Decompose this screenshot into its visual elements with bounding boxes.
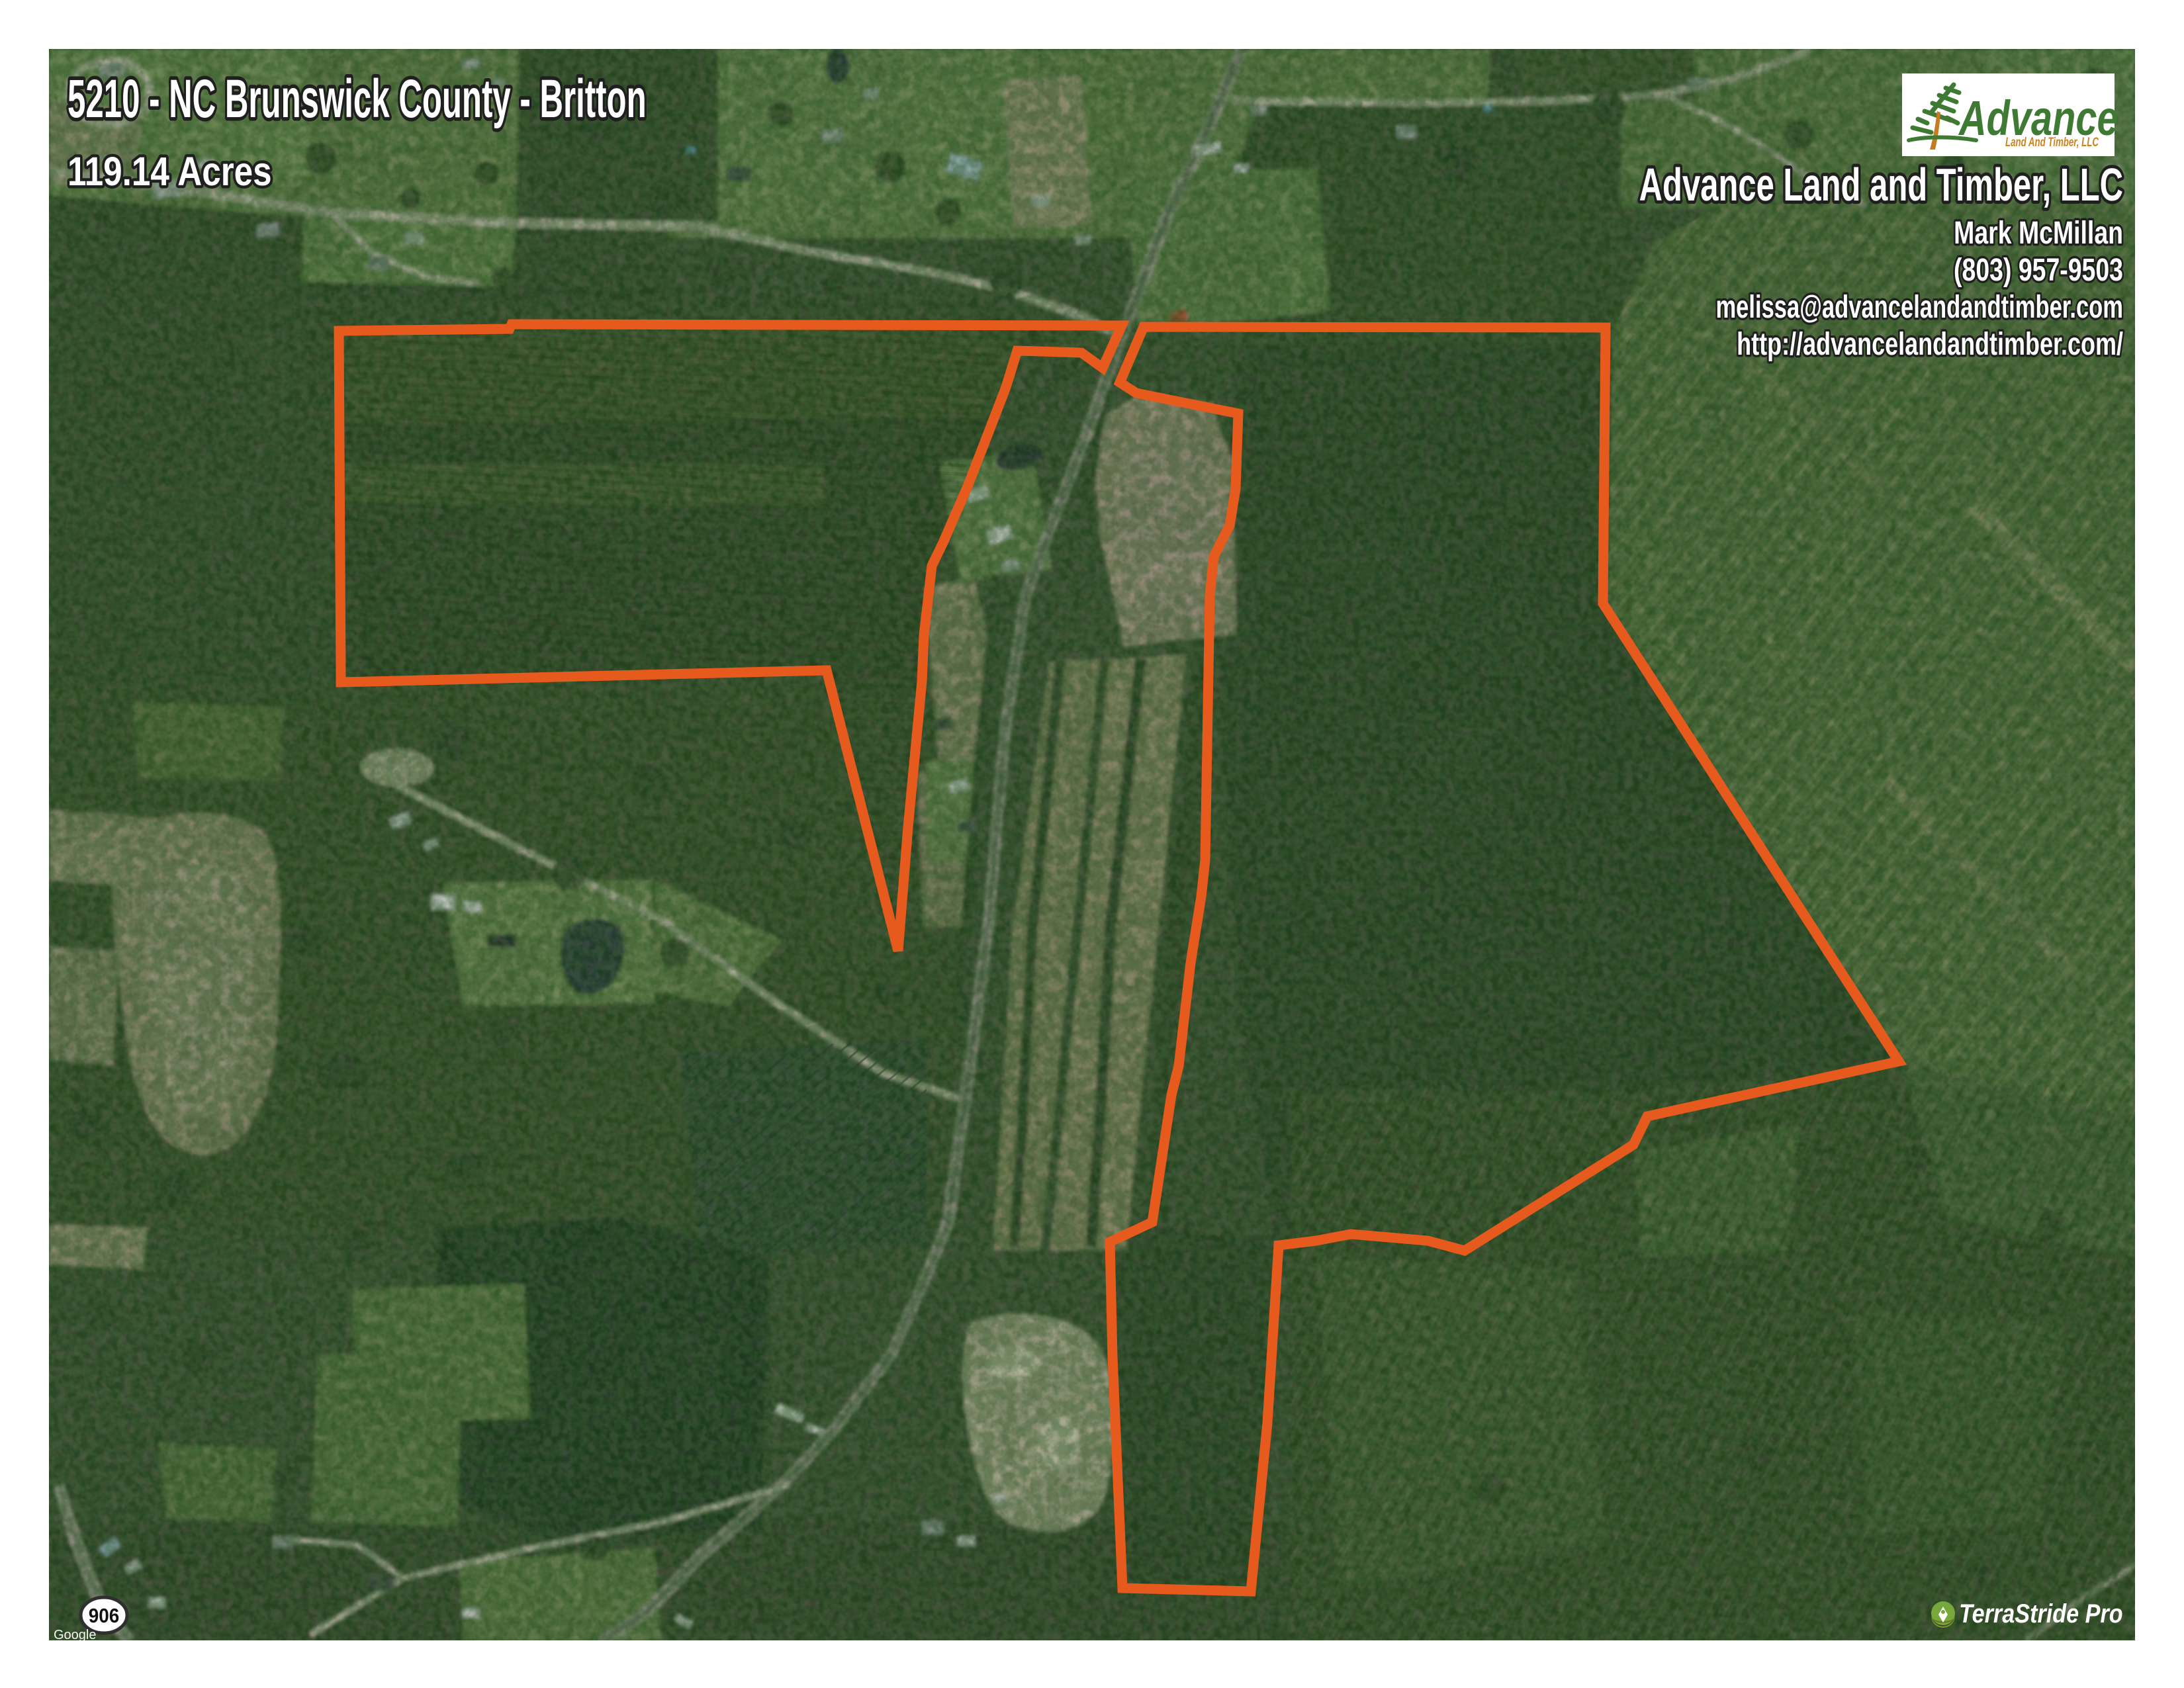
- svg-text:Advance Land and Timber, LLC: Advance Land and Timber, LLC: [1639, 158, 2123, 210]
- svg-text:Mark McMillan: Mark McMillan: [1954, 216, 2123, 251]
- svg-text:906: 906: [89, 1605, 120, 1628]
- svg-text:119.14 Acres: 119.14 Acres: [68, 149, 272, 194]
- svg-text:5210 - NC Brunswick County - B: 5210 - NC Brunswick County - Britton: [68, 69, 647, 129]
- svg-text:melissa@advancelandandtimber.c: melissa@advancelandandtimber.com: [1715, 289, 2123, 324]
- svg-text:Google: Google: [54, 1628, 97, 1642]
- svg-text:TerraStride Pro: TerraStride Pro: [1959, 1598, 2123, 1628]
- svg-text:(803) 957-9503: (803) 957-9503: [1954, 253, 2123, 289]
- svg-text:http://advancelandandtimber.co: http://advancelandandtimber.com/: [1737, 326, 2123, 361]
- svg-text:Land And Timber, LLC: Land And Timber, LLC: [2005, 136, 2099, 150]
